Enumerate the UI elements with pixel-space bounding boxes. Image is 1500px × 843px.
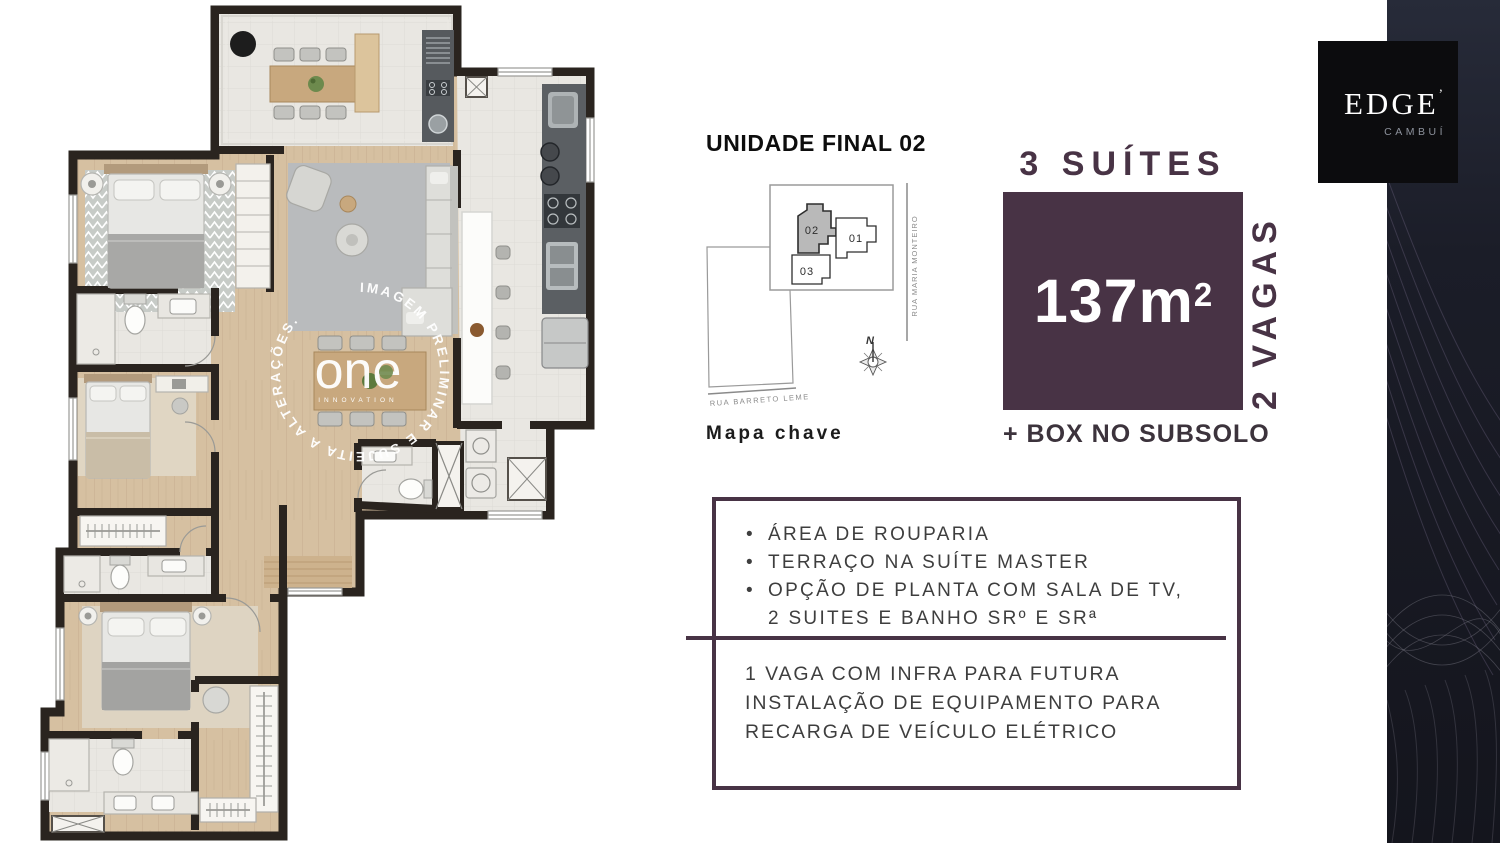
grill-cabinet [422,30,454,142]
kitchen-island [462,212,492,404]
feature-item: • TERRAÇO NA SUÍTE MASTER [746,549,1223,577]
bedroom1-furniture [81,164,270,288]
feature-text: OPÇÃO DE PLANTA COM SALA DE TV, [768,577,1183,605]
unit-title: UNIDADE FINAL 02 [706,130,926,157]
feature-text: ÁREA DE ROUPARIA [768,521,990,549]
bullet-icon: • [746,521,768,549]
area-box: 137m2 [1003,192,1243,410]
parking-note-line: 1 VAGA COM INFRA PARA FUTURA [745,660,1161,689]
parking-note-line: RECARGA DE VEÍCULO ELÉTRICO [745,718,1161,747]
page-root: IMAGEM PRELIMINAR E SUJEITA A ALTERAÇÕES… [0,0,1500,843]
street-bottom-label: RUA BARRETO LEME [710,392,811,408]
key-map-unit01-label: 01 [849,233,863,245]
brand-logo-box: EDGE’ CAMBUÍ [1318,41,1458,183]
brand-logo: EDGE’ [1318,86,1458,122]
pouf [203,687,229,713]
wardrobe1 [236,164,270,288]
feature-text: TERRAÇO NA SUÍTE MASTER [768,549,1090,577]
map-caption: Mapa chave [706,423,844,445]
brand-location: CAMBUÍ [1318,126,1458,138]
feature-item: • OPÇÃO DE PLANTA COM SALA DE TV, [746,577,1223,605]
parking-note-line: INSTALAÇÃO DE EQUIPAMENTO PARA [745,689,1161,718]
storage-label: + BOX NO SUBSOLO [1003,420,1270,449]
master-terrace-deck [264,556,352,588]
fire-pit [230,31,256,57]
compass-north-label: N [866,335,875,347]
feature-item: • ÁREA DE ROUPARIA [746,521,1223,549]
features-divider [686,636,1226,640]
floor-plan: IMAGEM PRELIMINAR E SUJEITA A ALTERAÇÕES… [30,0,630,843]
feature-text-continuation: 2 SUITES E BANHO SRº E SRª [768,605,1223,633]
watermark-brand-sub: INNOVATION [318,397,397,404]
key-map-unit02-label: 02 [805,225,819,237]
area-value: 137m [1034,266,1194,336]
brand-logo-tick: ’ [1439,86,1446,101]
key-map: 02 01 03 RUA MARIA MONTEIRO RUA BARRETO … [695,178,940,413]
closet2 [80,516,166,546]
street-right-label: RUA MARIA MONTEIRO [910,215,919,316]
area-exponent: 2 [1194,276,1212,314]
key-map-unit03-label: 03 [800,266,814,278]
suites-heading: 3 SUÍTES [1003,145,1243,184]
parking-note: 1 VAGA COM INFRA PARA FUTURA INSTALAÇÃO … [745,660,1161,747]
parking-label: 2 VAGAS [1246,192,1285,410]
brand-logo-text: EDGE [1344,86,1439,121]
bullet-icon: • [746,577,768,605]
bullet-icon: • [746,549,768,577]
compass-icon: N [860,335,886,375]
